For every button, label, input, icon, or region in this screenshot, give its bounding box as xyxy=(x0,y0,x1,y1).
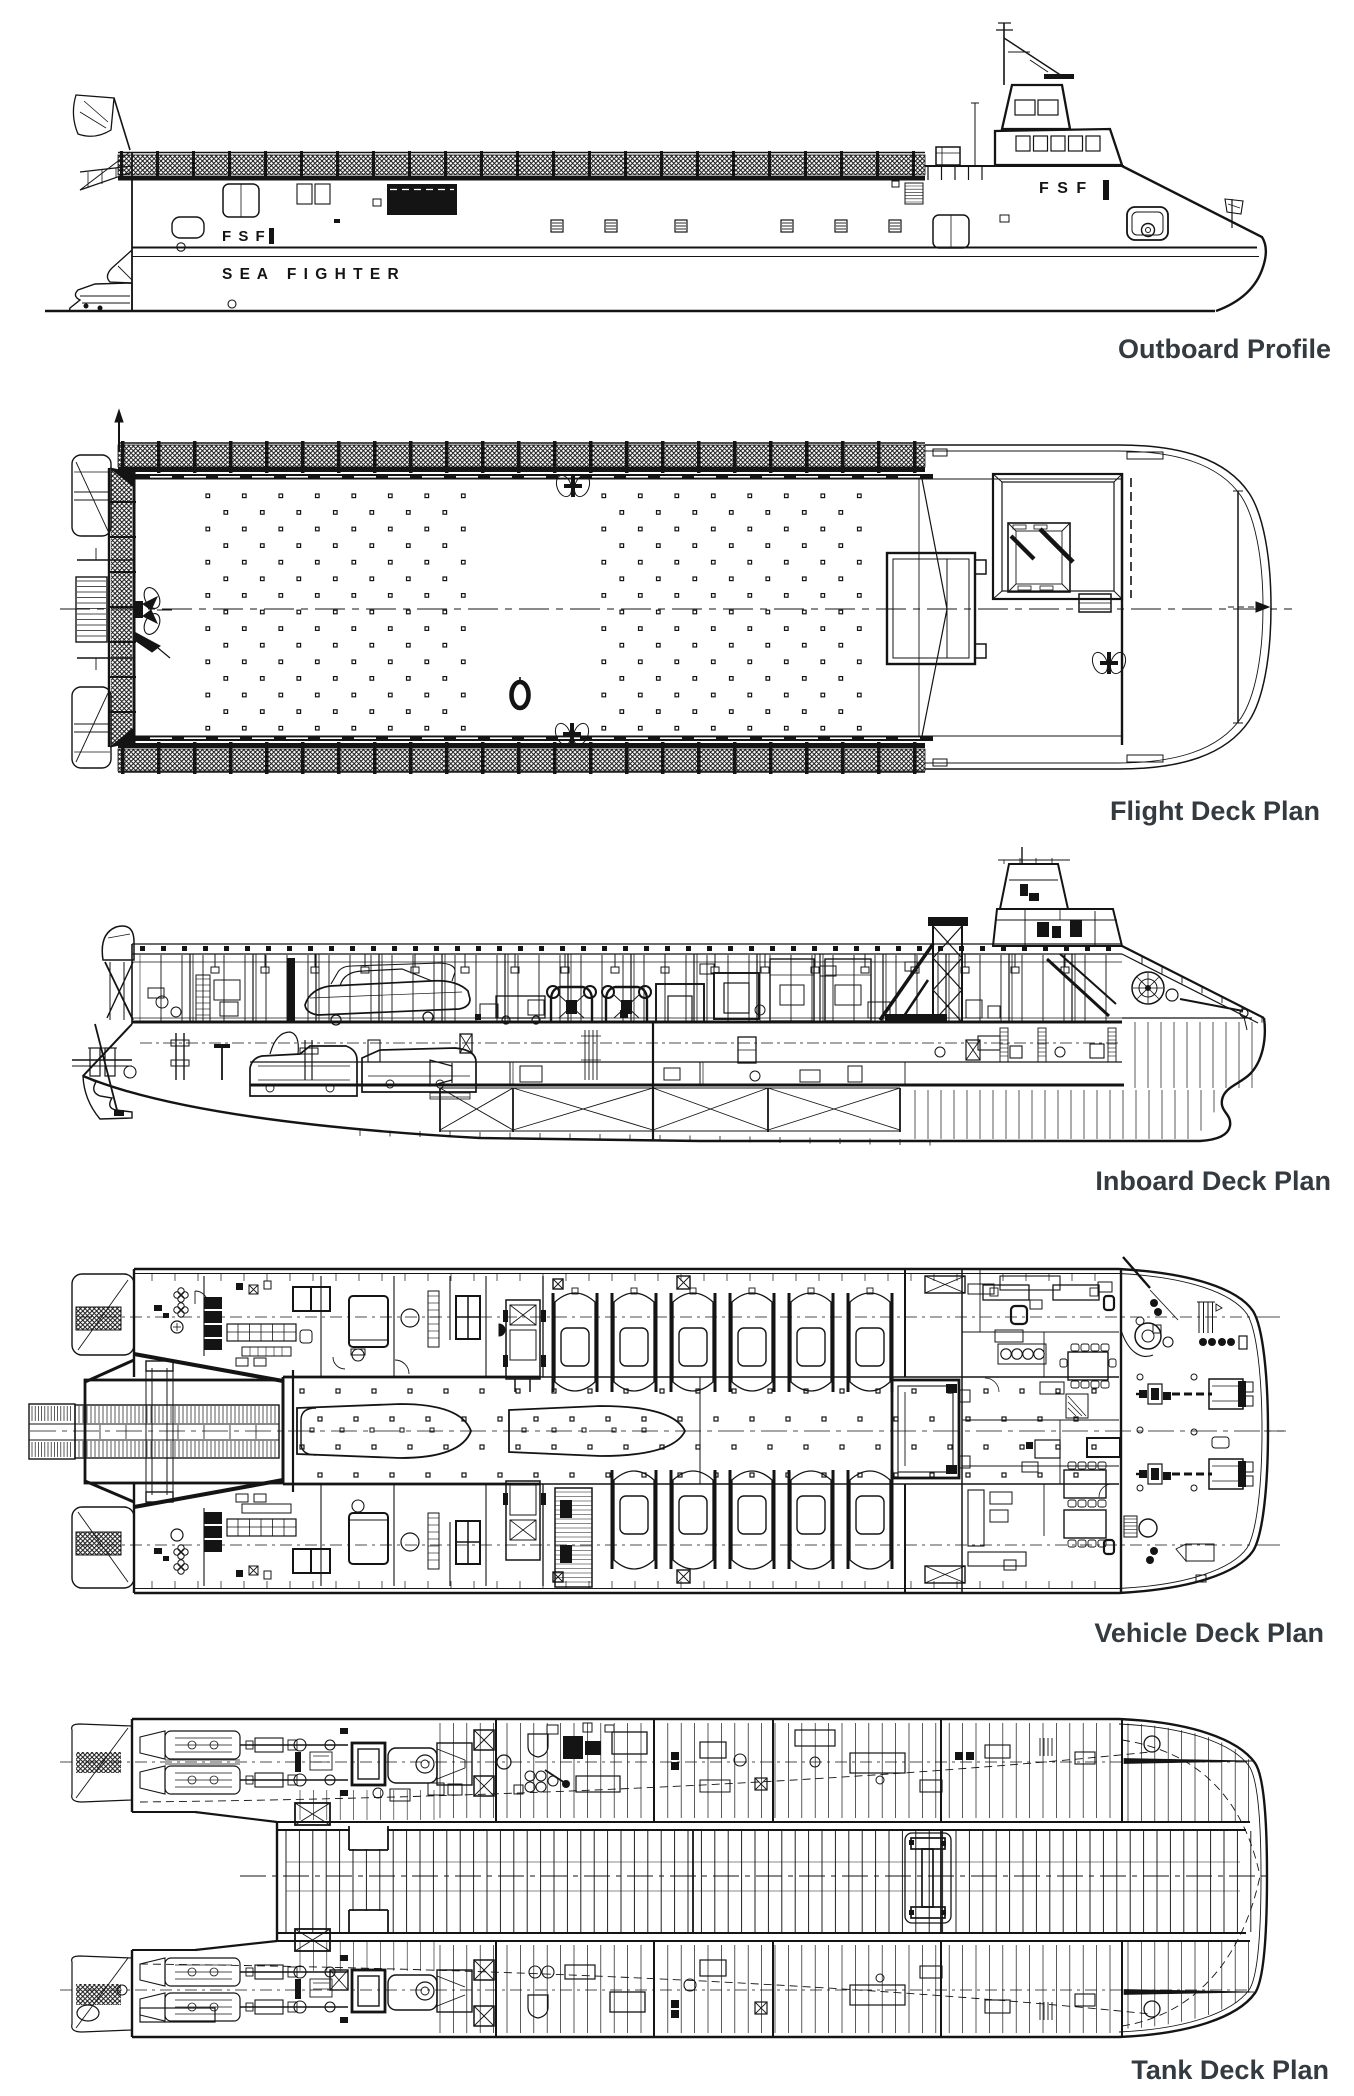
svg-text:Outboard Profile: Outboard Profile xyxy=(1118,334,1331,364)
svg-text:Tank Deck Plan: Tank Deck Plan xyxy=(1131,2055,1329,2085)
svg-text:Vehicle Deck Plan: Vehicle Deck Plan xyxy=(1094,1618,1324,1648)
svg-text:S E A F I G H T E R: S E A F I G H T E R xyxy=(222,266,400,283)
svg-text:F S F: F S F xyxy=(222,228,266,245)
svg-text:Flight Deck Plan: Flight Deck Plan xyxy=(1110,796,1320,826)
svg-text:F S F: F S F xyxy=(1039,180,1088,197)
svg-text:Inboard Deck Plan: Inboard Deck Plan xyxy=(1095,1166,1331,1196)
